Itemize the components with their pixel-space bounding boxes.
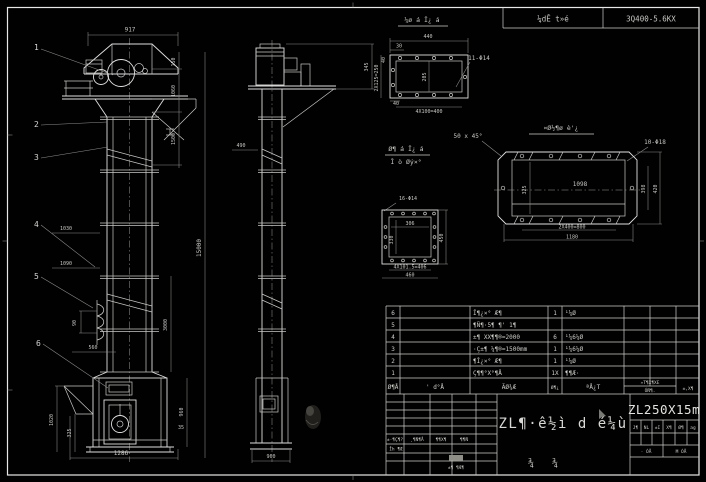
bom-row-qty: 1: [553, 310, 557, 317]
drawing-title: ZL¶·ê½ì d é¼ù: [498, 416, 627, 432]
dim-150: 150: [171, 57, 177, 66]
tb-right-h1: J¶: [633, 425, 639, 431]
tb-left-h2: ¸¶Ñ¶Å: [410, 436, 424, 443]
bom-header: Ø¶Å ' d°Å ÃØ¾Æ Ø¶¿ ªÅ¿T »T¶X¶XE ÓÑ¶. ±,X…: [388, 380, 694, 394]
balloon-callouts: 1 2 3 4 5 6: [34, 43, 113, 388]
balloon-5: 5: [34, 272, 39, 281]
bom-row-qty: 1X: [551, 370, 559, 377]
tb-left-bottom: ±¶ ¶Æ¶: [448, 465, 465, 471]
bom-header-material: ªÅ¿T: [586, 384, 601, 391]
bom-row-name: Ç¶¶°X°¶Å: [473, 370, 502, 377]
detail-c-hole-label: 16-Φ14: [399, 196, 417, 202]
balloon-1: 1: [34, 43, 39, 52]
bom-row-name: ¶Ñ¶·5¶ ¶' 1¶: [473, 322, 517, 329]
detail-c-dim-b2: 460: [405, 273, 414, 279]
side-view: 490 345 960: [232, 40, 374, 463]
bom-header-weight-bottom: ÓÑ¶.: [645, 387, 656, 394]
dim-560: 560: [88, 345, 97, 351]
bom-row-name: ±¶ XX¶¶®=2000: [473, 334, 520, 341]
bom-row-material: ¹¼Ø: [565, 310, 576, 317]
dim-1500: 1500: [171, 133, 177, 145]
bom-rows: 6 Î¶¿×° Æ¶ 1 ¹¼Ø 5 ¶Ñ¶·5¶ ¶' 1¶ 4 ±¶ XX¶…: [391, 310, 583, 377]
bom-header-no: Ø¶Å: [388, 384, 399, 391]
balloon-3: 3: [34, 153, 39, 162]
tb-middle-char1: ¾: [528, 457, 534, 469]
bom-row-material: ¹¼6¼Ø: [565, 346, 583, 353]
dim-side-345: 345: [364, 62, 370, 71]
bom-row-qty: 1: [553, 346, 557, 353]
bom-row-name: ·Ç±¶ ¼¶®=1500mm: [473, 346, 528, 353]
detail-a-dim-440: 440: [423, 34, 432, 40]
tb-left-h3: ¶¶X¶: [436, 437, 447, 443]
bom-row-no: 4: [391, 334, 395, 341]
tb-scale-left: · ÓÅ: [641, 448, 652, 455]
dim-1030: 1030: [60, 226, 72, 232]
bom-header-note: ±,X¶: [683, 386, 694, 392]
bom-row-qty: 1: [553, 358, 557, 365]
detail-c: Ø¶ á Î¿ á Î ò Øý×° 16-Φ14 306 330 450 4X…: [382, 144, 448, 279]
model-number: ZL250X15m: [628, 402, 700, 417]
detail-c-title2: Î ò Øý×°: [390, 157, 421, 166]
title-block: ±·¶Ç¶? ¸¶Ñ¶Å ¶¶X¶ ¶¶Ñ Îh ¶Æ ±¶ ¶Æ¶ ZL¶·ê…: [386, 394, 700, 475]
dim-1060: 1060: [171, 85, 177, 97]
detail-b-hole-label: 10-Φ18: [644, 139, 666, 146]
tb-right-h6: ag: [690, 426, 696, 431]
detail-a-dim-40b: 40: [393, 101, 399, 107]
balloon-2: 2: [34, 120, 39, 129]
detail-c-dim-innerw: 306: [405, 221, 414, 227]
dim-15000: 15000: [196, 239, 203, 257]
detail-a-hole-label: 11-Φ14: [468, 55, 490, 62]
cad-drawing-sheet: ¼dÊ t»é 3Q400-5.6KX: [0, 0, 706, 482]
tb-middle-char2: ¾: [552, 457, 558, 469]
signature-stamp: [449, 455, 463, 461]
detail-c-title1: Ø¶ á Î¿ á: [388, 144, 423, 153]
balloon-4: 4: [34, 220, 39, 229]
dim-1020: 1020: [49, 414, 55, 426]
tb-left-h4: ¶¶Ñ: [460, 436, 468, 443]
dim-3000: 3000: [163, 319, 169, 331]
tb-right-h3: ±I: [655, 425, 661, 431]
dim-1286: 1286: [114, 450, 129, 457]
bom-row-no: 2: [391, 358, 395, 365]
detail-a-dim-left: 2X125=250: [374, 64, 380, 91]
bom-row-no: 3: [391, 346, 395, 353]
bom-row-no: 5: [391, 322, 395, 329]
bom-row-name: Î¶¿×° Æ¶: [473, 310, 502, 317]
balloon-6: 6: [36, 339, 41, 348]
dim-front-width: 917: [125, 27, 136, 34]
dim-35: 35: [178, 425, 184, 431]
detail-b-dim-398: 398: [641, 184, 647, 193]
header-right-text: 3Q400-5.6KX: [626, 15, 676, 24]
bom-row-material: ¹¼Ø: [565, 358, 576, 365]
detail-b: ¤Ø½¶ø è'¿ 50 x 45° 10-Φ18 1098 325 398 4…: [454, 124, 667, 242]
detail-b-note: 50 x 45°: [454, 133, 483, 140]
tb-left-row2: Îh ¶Æ: [389, 446, 403, 453]
bom-header-code: ' d°Å: [426, 384, 444, 391]
tb-scale-right: M ÓÅ: [676, 448, 687, 455]
bom-header-qty: Ø¶¿: [551, 384, 559, 391]
bom-table: 6 Î¶¿×° Æ¶ 1 ¹¼Ø 5 ¶Ñ¶·5¶ ¶' 1¶ 4 ±¶ XX¶…: [386, 306, 699, 475]
dim-90: 90: [72, 320, 78, 326]
detail-a-title: ¼ø á Î¿ á: [404, 15, 439, 24]
detail-b-dim-b2: 1180: [566, 235, 578, 241]
detail-a-dim-inner: 205: [422, 72, 428, 81]
tb-left-h1: ±·¶Ç¶?: [387, 437, 404, 443]
header-left-text: ¼dÊ t»é: [537, 15, 569, 24]
smudge-artifact: [305, 405, 321, 429]
detail-c-dim-innerh: 330: [389, 235, 395, 244]
bom-row-qty: 6: [553, 334, 557, 341]
detail-a-dim-30: 30: [396, 44, 402, 50]
detail-a-dim-40: 40: [381, 57, 387, 63]
detail-a: ¼ø á Î¿ á 440 30 40 2X125=250 205 40 4X1…: [374, 15, 490, 115]
tb-right-h2: NL: [644, 425, 650, 431]
detail-c-dim-b1: 4X101.5=406: [393, 265, 426, 271]
dim-side-490: 490: [236, 143, 245, 149]
bom-row-no: 1: [391, 370, 395, 377]
bom-header-name: ÃØ¾Æ: [502, 384, 517, 391]
front-view: 917 150 1060 1500 15000 3000 960 35 1030…: [34, 27, 205, 463]
bom-row-material: ¶¶Æ·: [565, 370, 579, 377]
bom-row-material: ¹¼6¼Ø: [565, 334, 583, 341]
detail-c-dim-right: 450: [439, 233, 445, 242]
bom-row-no: 6: [391, 310, 395, 317]
bom-header-weight-top: »T¶X¶XE: [641, 380, 660, 386]
dim-side-base: 960: [266, 454, 275, 460]
detail-b-dim-innerh: 325: [522, 185, 528, 194]
bom-row-name: ¶Î¿×° Æ¶: [473, 358, 502, 365]
detail-b-dim-1098: 1098: [573, 181, 588, 188]
header-strip: ¼dÊ t»é 3Q400-5.6KX: [503, 8, 699, 29]
dim-960: 960: [179, 407, 185, 416]
dim-1090: 1090: [60, 261, 72, 267]
detail-b-dim-420: 420: [653, 184, 659, 193]
tb-right-h4: X¶: [666, 425, 672, 431]
detail-b-dim-b1: 2X400=800: [558, 225, 585, 231]
tb-right-h5: Ø¶: [678, 424, 684, 431]
detail-a-dim-bottom: 4X100=400: [415, 109, 442, 115]
detail-b-title: ¤Ø½¶ø è'¿: [543, 124, 578, 132]
